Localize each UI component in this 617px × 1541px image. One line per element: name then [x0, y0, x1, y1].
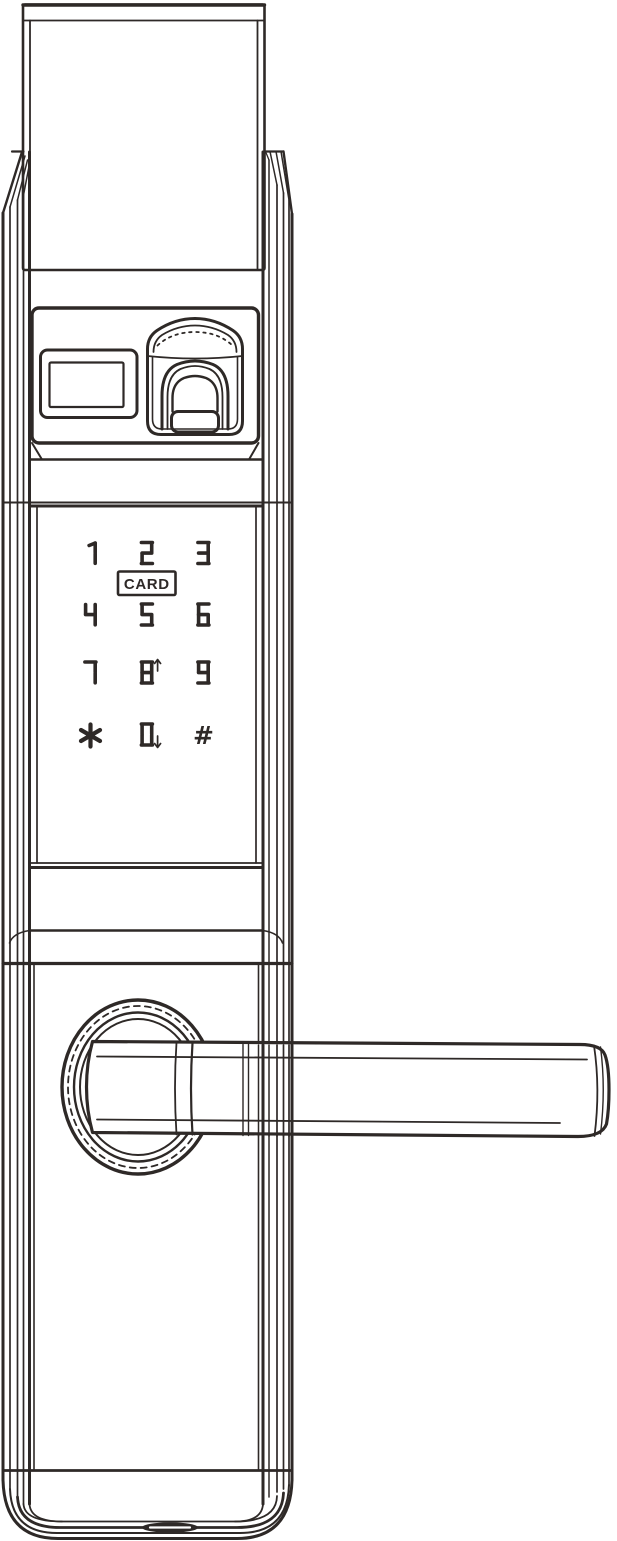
keypad-key-hash: # — [193, 721, 214, 750]
keypad-key-4 — [86, 605, 96, 625]
card-label: CARD — [118, 572, 176, 596]
fingerprint-scanner — [148, 319, 243, 435]
display-window — [41, 350, 138, 418]
keypad-key-hash-glyph: # — [193, 721, 214, 750]
keypad-key-star — [81, 725, 100, 747]
keypad-key-2 — [141, 543, 152, 564]
keypad-key-5 — [141, 604, 152, 625]
down-arrow-icon — [155, 736, 161, 748]
lock-drawing: # CARD — [0, 0, 617, 1541]
scanner-knurl-texture — [158, 332, 233, 346]
card-label-text: CARD — [124, 576, 170, 593]
keypad-key-0 — [141, 724, 160, 748]
keypad-section — [3, 506, 292, 1470]
lever-handle — [87, 1042, 610, 1137]
handle — [62, 1000, 609, 1174]
keypad-key-6 — [198, 604, 209, 625]
bottom-cap — [3, 1471, 292, 1539]
keypad-key-9 — [198, 662, 209, 683]
keypad-key-8 — [141, 660, 160, 684]
keypad-keys: # — [81, 543, 214, 751]
up-arrow-icon — [155, 660, 161, 672]
keypad-key-1 — [89, 543, 95, 563]
top-cover — [23, 5, 265, 271]
keypad-key-7 — [85, 662, 96, 683]
keypad-key-3 — [198, 543, 209, 564]
